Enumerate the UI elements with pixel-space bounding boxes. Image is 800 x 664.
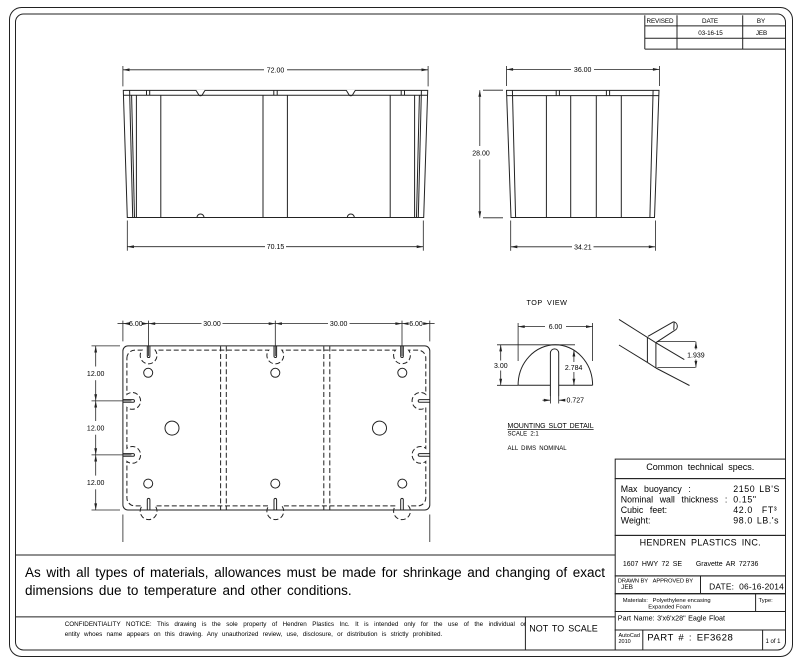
svg-text:12.00: 12.00 <box>87 480 105 487</box>
svg-text:HENDREN PLASTICS INC.: HENDREN PLASTICS INC. <box>640 538 761 548</box>
svg-text:28.00: 28.00 <box>472 150 490 157</box>
svg-text:6.00: 6.00 <box>129 321 143 328</box>
svg-text:JEB: JEB <box>756 30 767 37</box>
svg-text:70.15: 70.15 <box>267 244 285 251</box>
svg-text:Cubic feet:: Cubic feet: <box>621 505 667 515</box>
svg-text:APPROVED BY: APPROVED BY <box>653 579 694 585</box>
svg-text:1 of 1: 1 of 1 <box>766 639 782 645</box>
svg-text:6.00: 6.00 <box>409 321 423 328</box>
svg-text:NOT TO SCALE: NOT TO SCALE <box>529 624 598 634</box>
svg-text:Max buoyancy :: Max buoyancy : <box>621 484 691 494</box>
svg-text:2010: 2010 <box>619 639 631 645</box>
svg-text:72.00: 72.00 <box>267 67 285 74</box>
svg-text:ALL DIMS NOMINAL: ALL DIMS NOMINAL <box>508 446 568 452</box>
svg-text:entity whoes name appears on t: entity whoes name appears on this drawin… <box>65 631 443 638</box>
svg-text:12.00: 12.00 <box>87 425 105 432</box>
svg-text:1607 HWY 72 SE Gravette AR: 1607 HWY 72 SE Gravette AR 72736 <box>623 561 759 568</box>
svg-text:2.784: 2.784 <box>565 365 583 372</box>
svg-text:As with all types of materials: As with all types of materials, allowanc… <box>25 565 605 580</box>
svg-text:2150 LB'S: 2150 LB'S <box>733 484 780 494</box>
svg-text:Part Name: 3'x6'x28" Eagle Flo: Part Name: 3'x6'x28" Eagle Float <box>618 613 725 622</box>
svg-text:CONFIDENTIALITY NOTICE: This d: CONFIDENTIALITY NOTICE: This drawing is … <box>65 621 526 628</box>
svg-text:Nominal wall thickness :: Nominal wall thickness : <box>621 494 727 504</box>
svg-text:98.0 LB.'s: 98.0 LB.'s <box>733 515 779 525</box>
svg-text:Common technical specs.: Common technical specs. <box>646 462 754 472</box>
svg-text:dimensions due to temperature: dimensions due to temperature and other … <box>25 583 352 598</box>
svg-text:42.0 FT³: 42.0 FT³ <box>733 505 777 515</box>
svg-text:3.00: 3.00 <box>494 363 508 370</box>
svg-text:DATE: DATE <box>702 18 718 25</box>
svg-text:MOUNTING SLOT DETAIL: MOUNTING SLOT DETAIL <box>508 423 594 430</box>
svg-text:Weight:: Weight: <box>621 515 651 525</box>
svg-text:34.21: 34.21 <box>574 244 592 251</box>
svg-text:1.939: 1.939 <box>687 352 705 359</box>
svg-text:BY: BY <box>757 18 766 25</box>
svg-text:DATE: 06-16-2014: DATE: 06-16-2014 <box>709 582 784 592</box>
svg-text:Expanded Foam: Expanded Foam <box>648 604 691 610</box>
svg-text:PART # : EF3628: PART # : EF3628 <box>647 633 733 644</box>
svg-text:30.00: 30.00 <box>330 321 348 328</box>
svg-text:0.727: 0.727 <box>567 398 585 405</box>
svg-text:Type:: Type: <box>759 598 774 604</box>
svg-text:SCALE 2:1: SCALE 2:1 <box>508 431 540 437</box>
svg-text:0.15": 0.15" <box>733 494 756 504</box>
svg-text:REVISED: REVISED <box>647 18 674 25</box>
svg-text:TOP VIEW: TOP VIEW <box>527 298 568 307</box>
svg-text:JEB: JEB <box>621 584 633 591</box>
svg-text:36.00: 36.00 <box>574 67 592 74</box>
svg-text:6.00: 6.00 <box>549 324 563 331</box>
svg-text:03-16-15: 03-16-15 <box>698 30 723 37</box>
svg-text:12.00: 12.00 <box>87 371 105 378</box>
svg-text:30.00: 30.00 <box>203 321 221 328</box>
svg-text:Materials: Polyethylene enca: Materials: Polyethylene encasing <box>623 598 711 604</box>
